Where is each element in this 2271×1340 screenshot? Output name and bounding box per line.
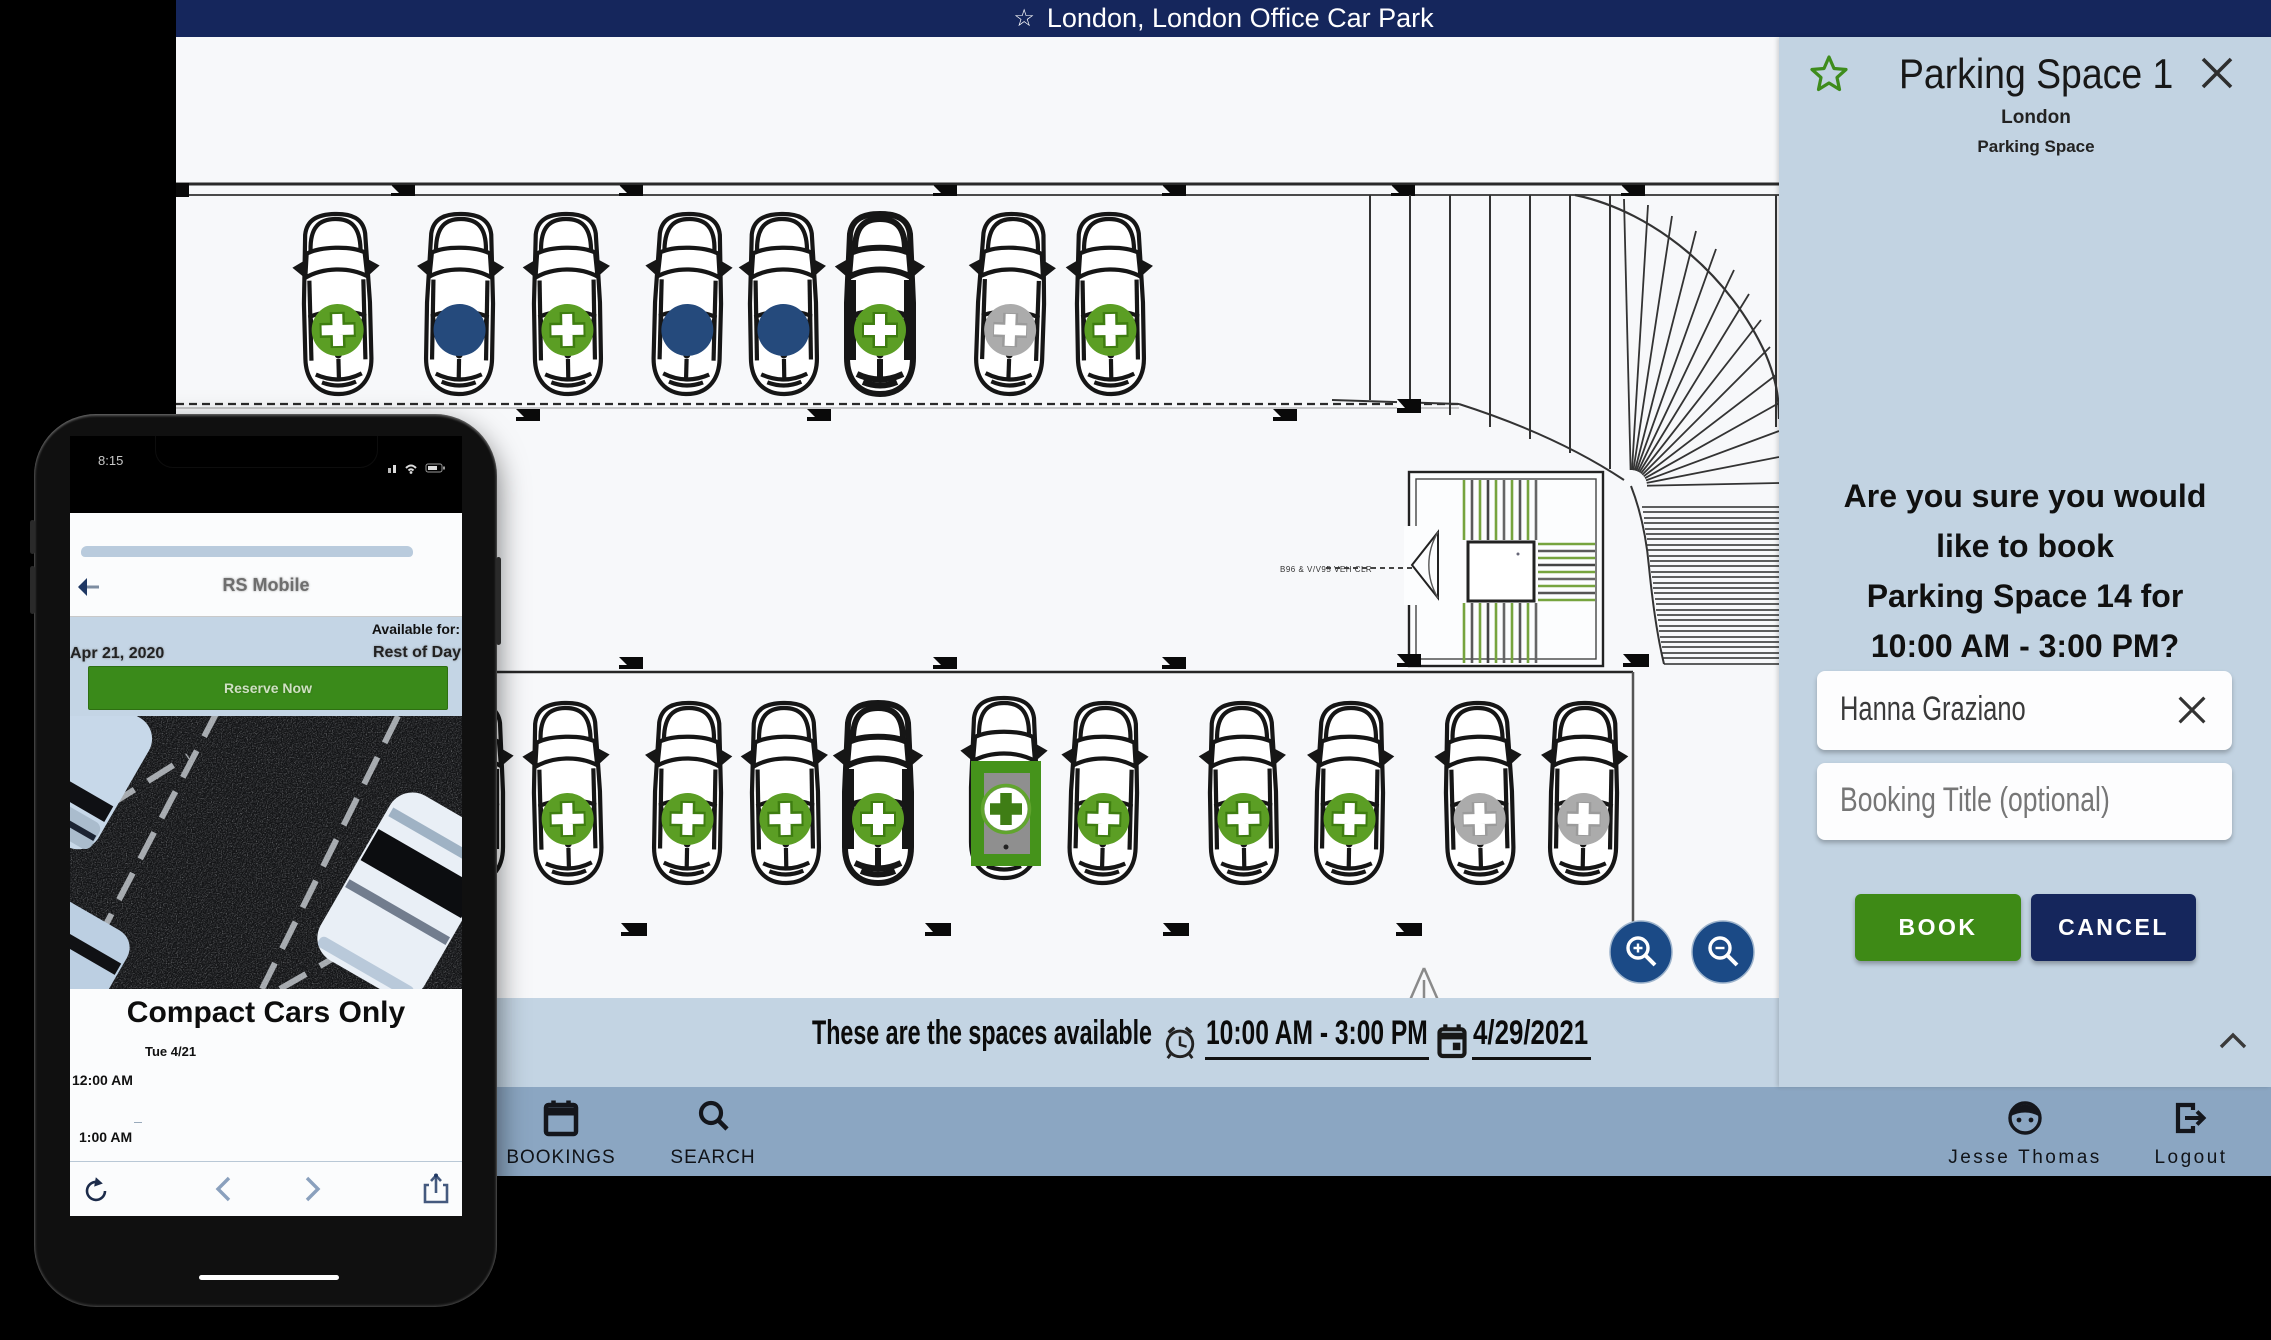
- svg-text:B96 & V/V95 VEH CLR: B96 & V/V95 VEH CLR: [1280, 565, 1372, 574]
